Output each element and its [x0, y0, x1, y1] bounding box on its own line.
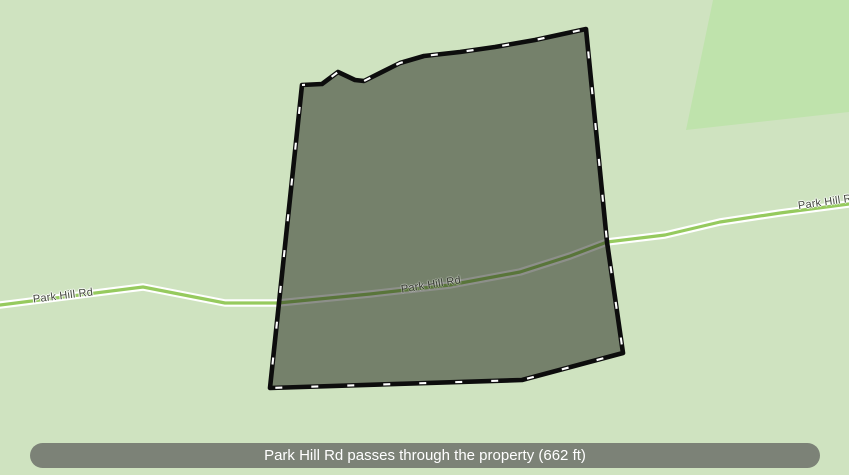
status-bar: Park Hill Rd passes through the property… — [30, 443, 820, 468]
map-layers — [0, 0, 849, 475]
map-canvas[interactable]: Park Hill Rd Park Hill Rd Park Hill Rd P… — [0, 0, 849, 475]
status-text: Park Hill Rd passes through the property… — [264, 448, 586, 463]
forest-patch — [686, 0, 849, 130]
